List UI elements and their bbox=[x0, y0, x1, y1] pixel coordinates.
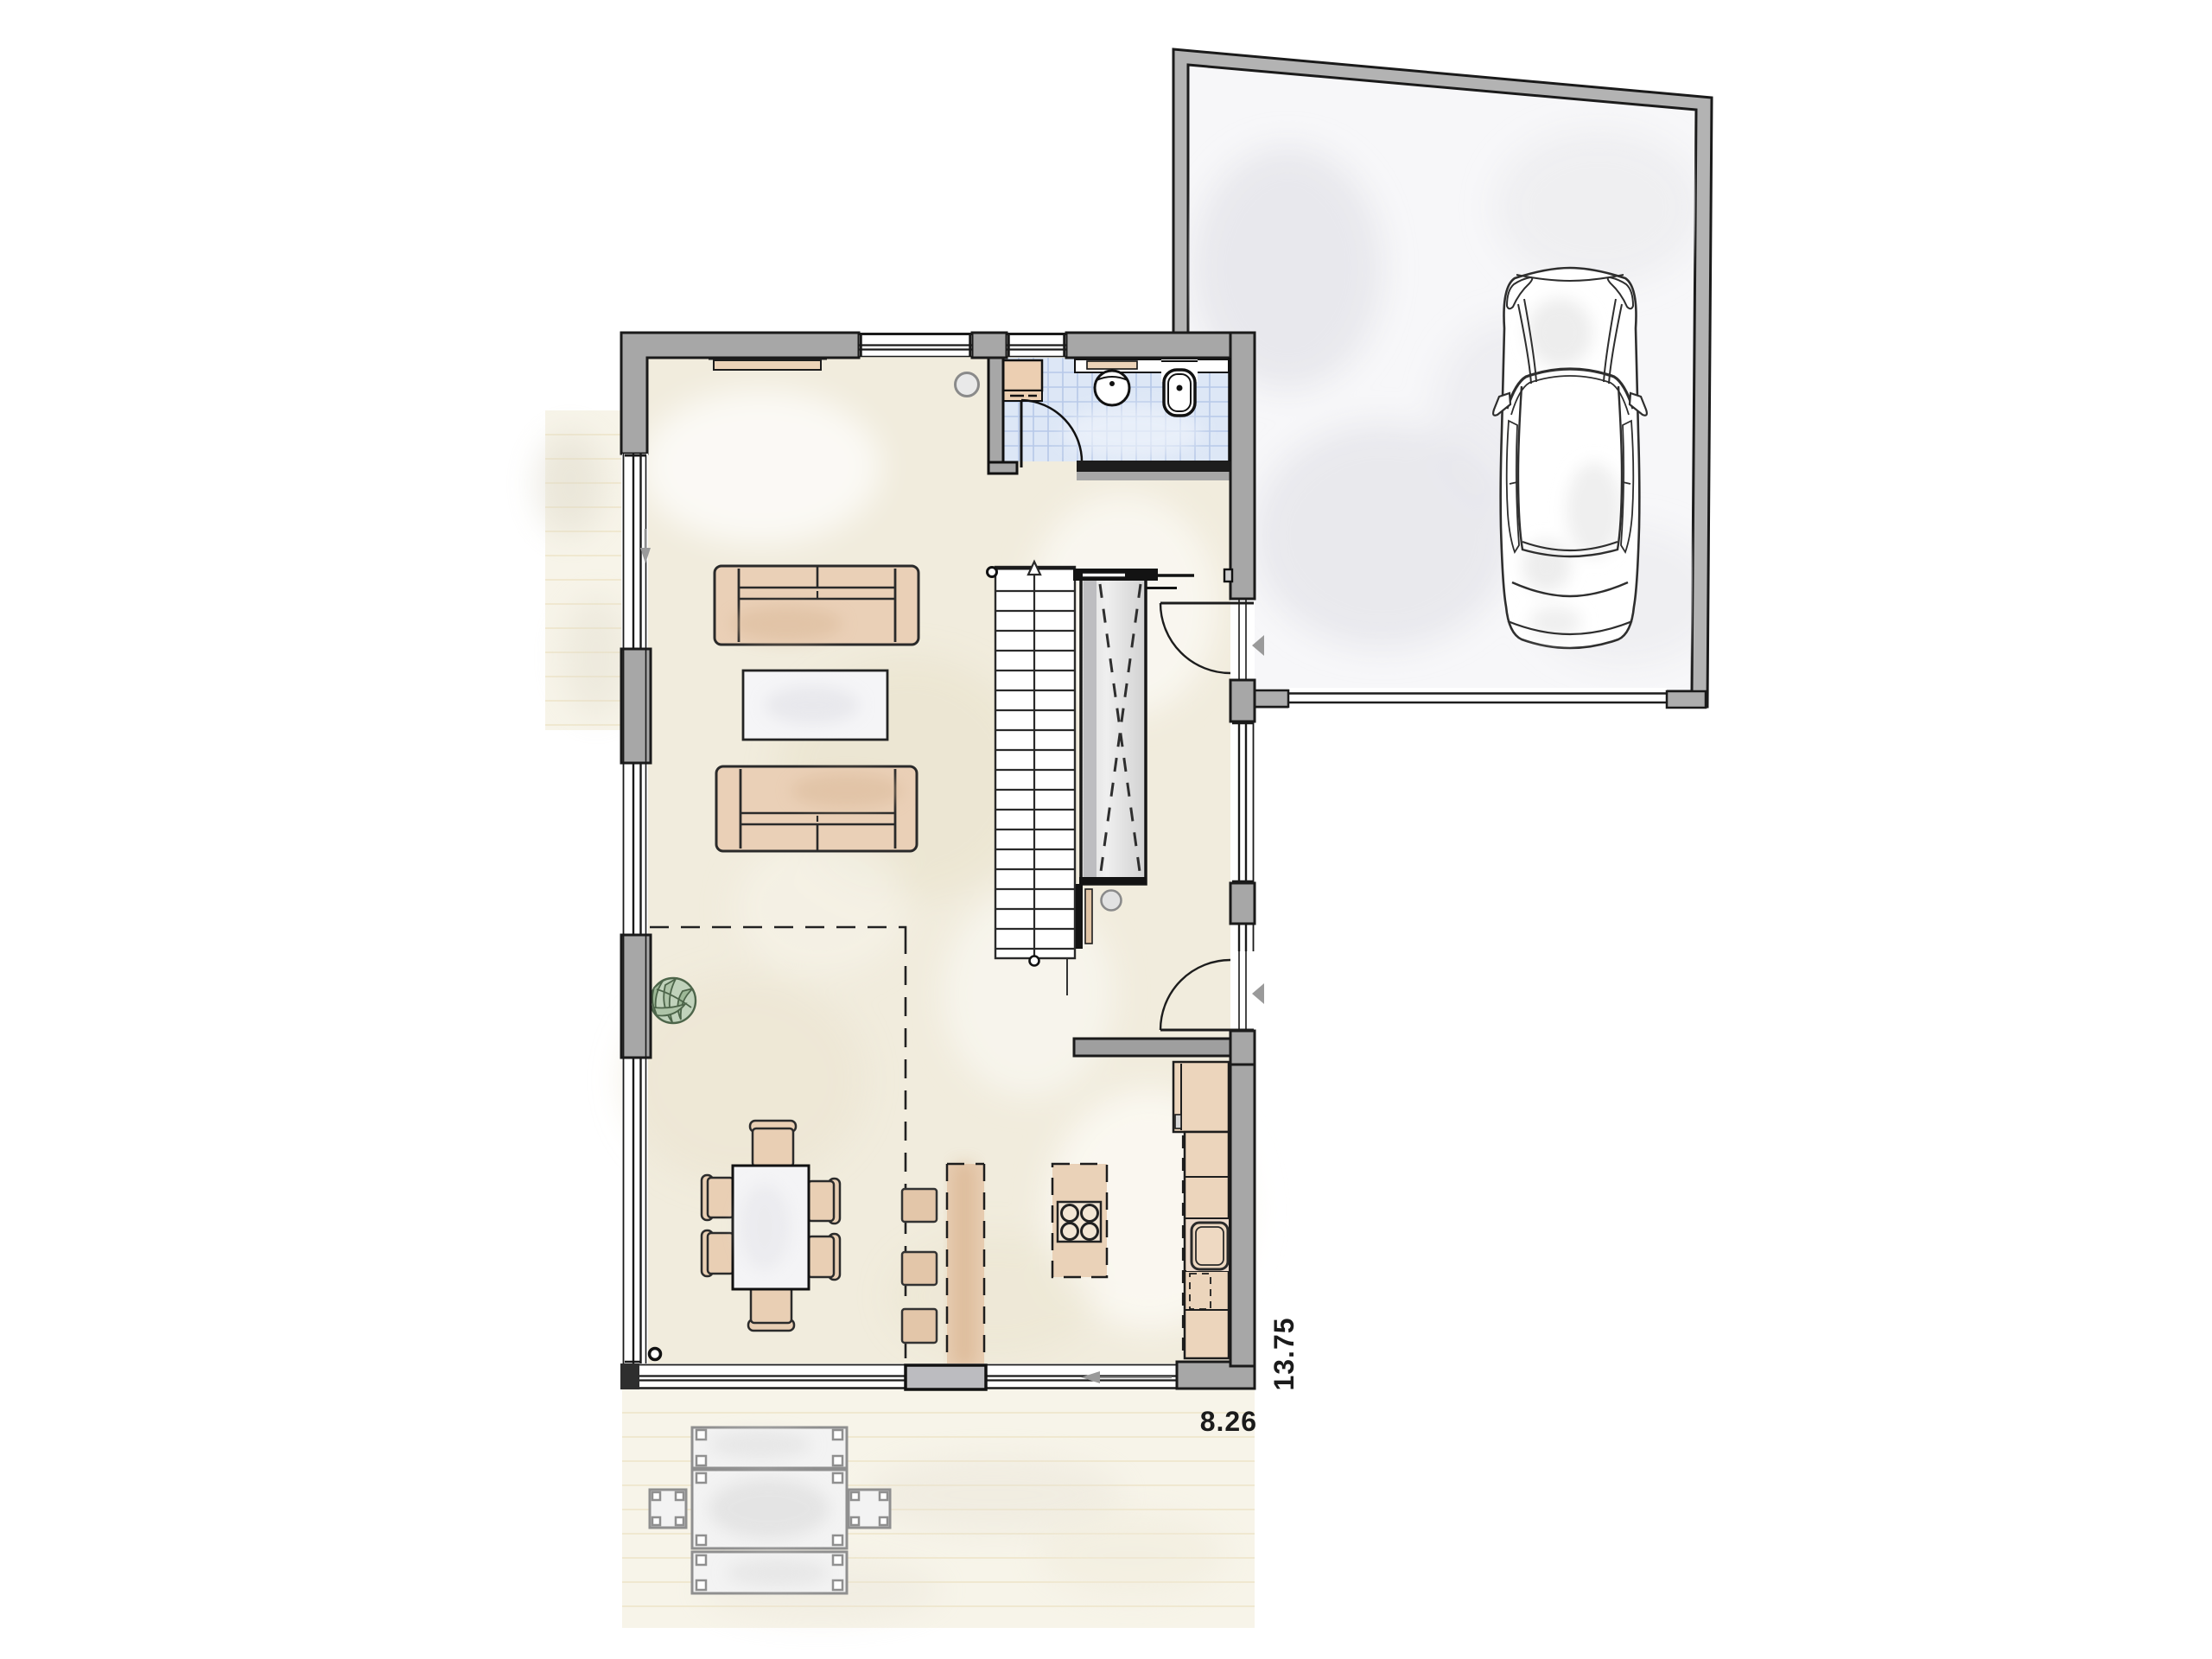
svg-text:13.75: 13.75 bbox=[1268, 1317, 1300, 1390]
svg-text:8.26: 8.26 bbox=[1200, 1406, 1257, 1437]
